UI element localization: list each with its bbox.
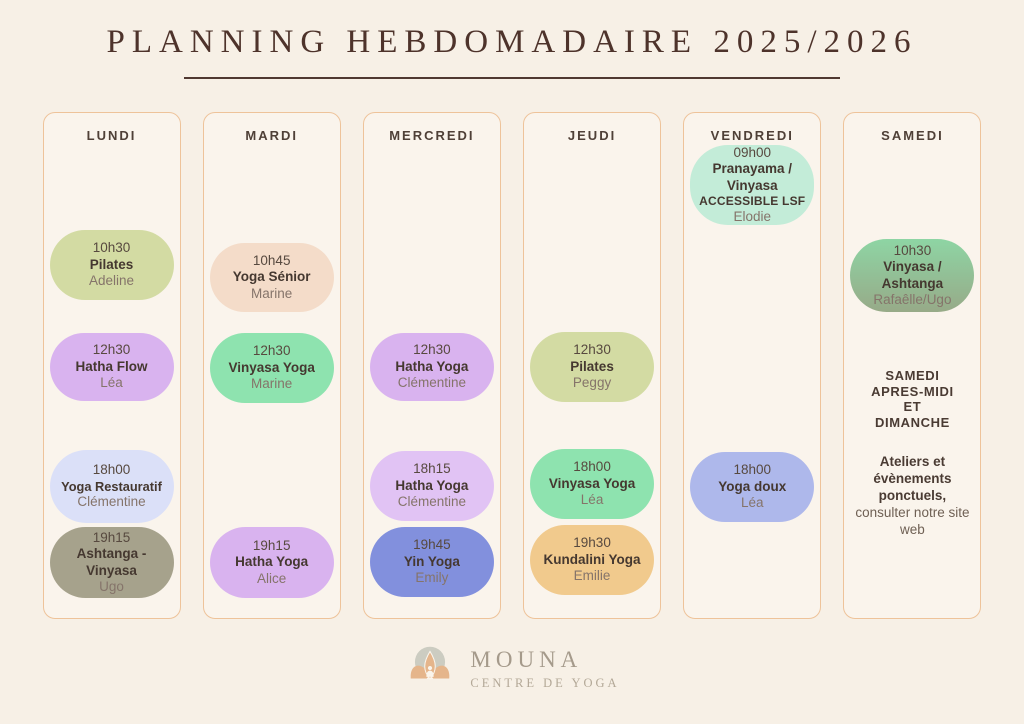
weekly-schedule-board: LUNDI 10h30 Pilates Adeline 12h30 Hatha … xyxy=(43,112,982,619)
day-header: SAMEDI xyxy=(844,128,980,143)
weekend-info-block: SAMEDI APRES-MIDI ET DIMANCHE Ateliers e… xyxy=(850,368,974,539)
event-teacher: Emilie xyxy=(574,568,611,584)
brand-text: MOUNA CENTRE DE YOGA xyxy=(470,647,619,691)
event-time: 09h00 xyxy=(733,145,771,161)
event-teacher: Ugo xyxy=(99,579,124,595)
day-column-vendredi: VENDREDI 09h00 Pranayama / Vinyasa ACCES… xyxy=(683,112,821,619)
weekend-info-regular: consulter notre site web xyxy=(855,505,969,537)
event-name: Vinyasa / Ashtanga xyxy=(852,259,972,292)
event-card: 10h30 Pilates Adeline xyxy=(50,230,174,300)
day-header: LUNDI xyxy=(44,128,180,143)
event-note: ACCESSIBLE LSF xyxy=(699,194,805,209)
day-column-samedi: SAMEDI 10h30 Vinyasa / Ashtanga Rafaêlle… xyxy=(843,112,981,619)
event-name: Pilates xyxy=(90,257,134,273)
event-teacher: Clémentine xyxy=(398,494,466,510)
event-teacher: Marine xyxy=(251,376,292,392)
day-header: MARDI xyxy=(204,128,340,143)
event-teacher: Emily xyxy=(415,570,448,586)
event-time: 18h00 xyxy=(733,462,771,478)
event-teacher: Elodie xyxy=(733,209,771,225)
weekend-info-heading: SAMEDI APRES-MIDI ET DIMANCHE xyxy=(850,368,974,430)
weekend-info-bold: Ateliers et évènements ponctuels, xyxy=(873,454,951,503)
brand-name: MOUNA xyxy=(470,647,619,673)
event-teacher: Léa xyxy=(741,495,764,511)
footer: MOUNA CENTRE DE YOGA xyxy=(0,640,1024,697)
event-card: 12h30 Hatha Flow Léa xyxy=(50,333,174,401)
event-teacher: Alice xyxy=(257,571,286,587)
event-time: 12h30 xyxy=(573,342,611,358)
event-card: 19h30 Kundalini Yoga Emilie xyxy=(530,525,654,595)
event-name: Pranayama / Vinyasa xyxy=(692,161,812,194)
event-time: 18h00 xyxy=(93,462,131,478)
event-name: Hatha Yoga xyxy=(395,359,468,375)
event-card: 19h15 Ashtanga - Vinyasa Ugo xyxy=(50,527,174,598)
day-column-mercredi: MERCREDI 12h30 Hatha Yoga Clémentine 18h… xyxy=(363,112,501,619)
event-time: 10h30 xyxy=(894,243,932,259)
event-card: 18h00 Yoga doux Léa xyxy=(690,452,814,522)
event-teacher: Léa xyxy=(100,375,123,391)
event-time: 18h00 xyxy=(573,459,611,475)
event-card: 18h00 Yoga Restauratif Clémentine xyxy=(50,450,174,523)
event-time: 19h45 xyxy=(413,537,451,553)
event-teacher: Clémentine xyxy=(398,375,466,391)
event-time: 12h30 xyxy=(253,343,291,359)
day-header: JEUDI xyxy=(524,128,660,143)
day-header: MERCREDI xyxy=(364,128,500,143)
event-teacher: Adeline xyxy=(89,273,134,289)
event-teacher: Clémentine xyxy=(77,494,145,510)
event-name: Pilates xyxy=(570,359,614,375)
event-name: Hatha Yoga xyxy=(235,554,308,570)
page-title: PLANNING HEBDOMADAIRE 2025/2026 xyxy=(0,24,1024,61)
title-divider xyxy=(184,77,840,79)
event-card: 18h15 Hatha Yoga Clémentine xyxy=(370,451,494,521)
event-time: 19h30 xyxy=(573,535,611,551)
event-card: 09h00 Pranayama / Vinyasa ACCESSIBLE LSF… xyxy=(690,145,814,225)
brand-subtitle: CENTRE DE YOGA xyxy=(470,676,619,691)
event-card: 19h45 Yin Yoga Emily xyxy=(370,527,494,597)
event-name: Vinyasa Yoga xyxy=(549,476,635,492)
event-time: 12h30 xyxy=(93,342,131,358)
header: PLANNING HEBDOMADAIRE 2025/2026 xyxy=(0,0,1024,79)
event-card: 12h30 Vinyasa Yoga Marine xyxy=(210,333,334,403)
event-name: Hatha Yoga xyxy=(395,478,468,494)
weekend-info-text: Ateliers et évènements ponctuels, consul… xyxy=(850,454,974,538)
event-card: 18h00 Vinyasa Yoga Léa xyxy=(530,449,654,519)
day-header: VENDREDI xyxy=(684,128,820,143)
event-time: 12h30 xyxy=(413,342,451,358)
event-time: 18h15 xyxy=(413,461,451,477)
event-teacher: Léa xyxy=(581,492,604,508)
event-time: 10h45 xyxy=(253,253,291,269)
mouna-lotus-logo-icon xyxy=(404,640,456,697)
event-name: Yoga Sénior xyxy=(233,269,311,285)
event-teacher: Marine xyxy=(251,286,292,302)
event-card: 19h15 Hatha Yoga Alice xyxy=(210,527,334,598)
event-name: Hatha Flow xyxy=(75,359,147,375)
event-name: Vinyasa Yoga xyxy=(229,360,315,376)
event-name: Yin Yoga xyxy=(404,554,460,570)
day-column-mardi: MARDI 10h45 Yoga Sénior Marine 12h30 Vin… xyxy=(203,112,341,619)
event-name: Yoga Restauratif xyxy=(61,479,162,495)
event-name: Ashtanga - Vinyasa xyxy=(52,546,172,579)
event-time: 10h30 xyxy=(93,240,131,256)
day-column-jeudi: JEUDI 12h30 Pilates Peggy 18h00 Vinyasa … xyxy=(523,112,661,619)
event-card: 12h30 Pilates Peggy xyxy=(530,332,654,402)
event-teacher: Rafaêlle/Ugo xyxy=(873,292,951,308)
event-card: 10h45 Yoga Sénior Marine xyxy=(210,243,334,312)
event-name: Yoga doux xyxy=(718,479,786,495)
event-card: 12h30 Hatha Yoga Clémentine xyxy=(370,333,494,401)
day-column-lundi: LUNDI 10h30 Pilates Adeline 12h30 Hatha … xyxy=(43,112,181,619)
event-teacher: Peggy xyxy=(573,375,611,391)
event-name: Kundalini Yoga xyxy=(544,552,641,568)
event-time: 19h15 xyxy=(253,538,291,554)
event-card: 10h30 Vinyasa / Ashtanga Rafaêlle/Ugo xyxy=(850,239,974,312)
event-time: 19h15 xyxy=(93,530,131,546)
